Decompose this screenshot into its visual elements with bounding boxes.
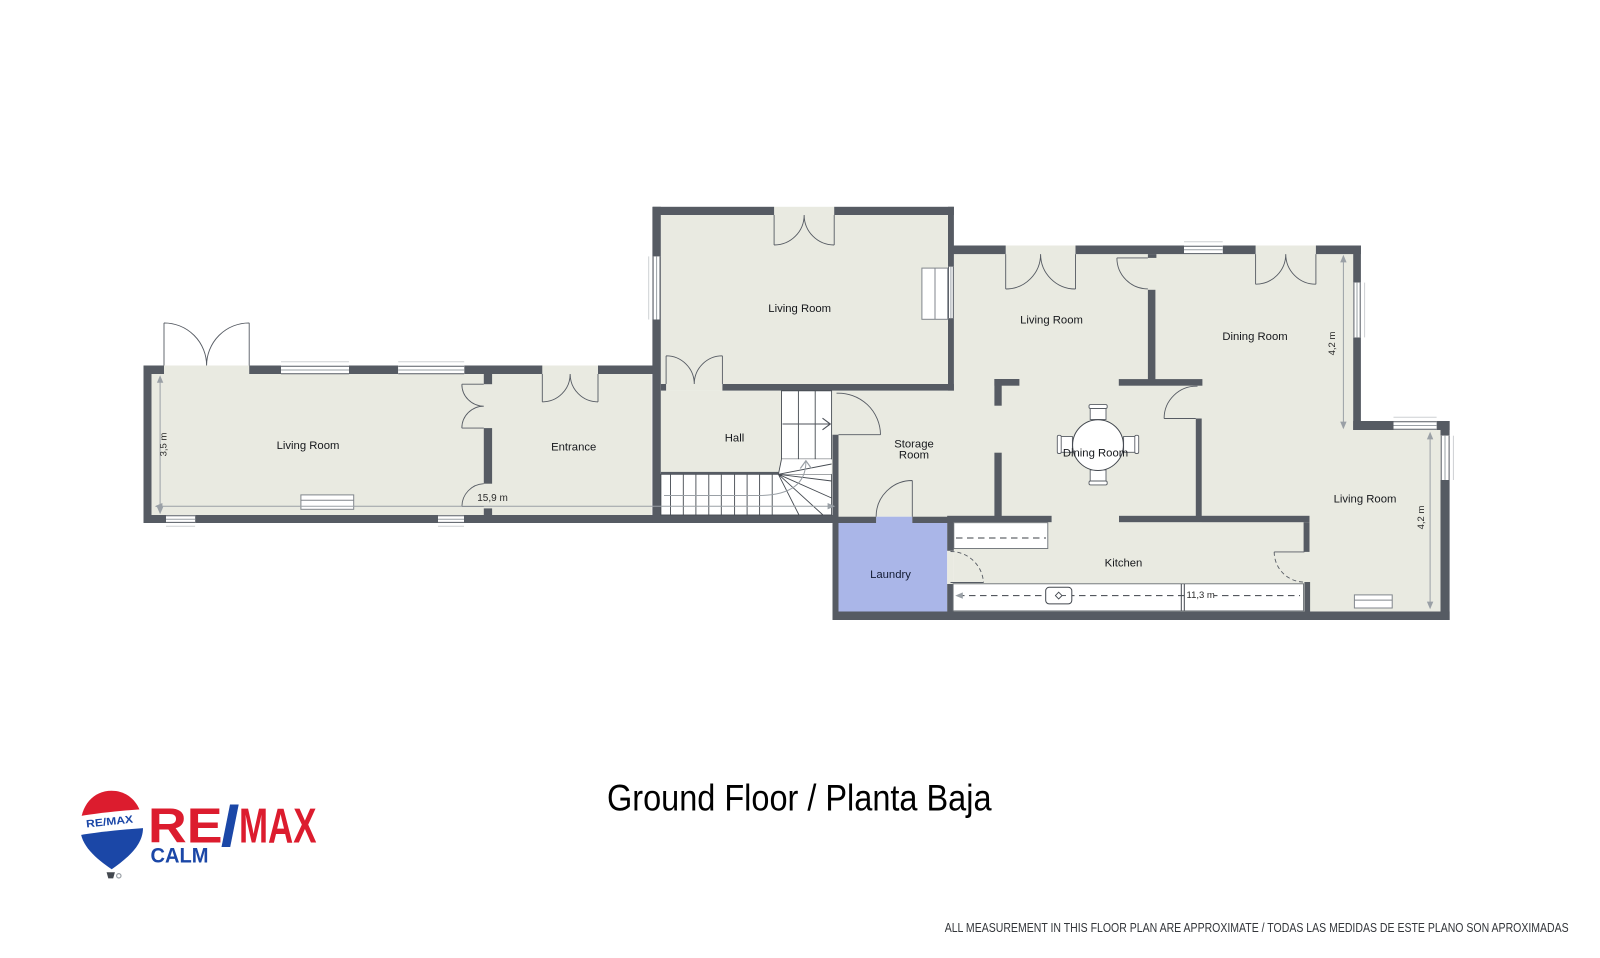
svg-text:Living Room: Living Room bbox=[1334, 494, 1397, 506]
svg-text:CALM: CALM bbox=[151, 844, 209, 868]
svg-text:3,5 m: 3,5 m bbox=[159, 433, 170, 457]
svg-text:11,3 m: 11,3 m bbox=[1187, 590, 1215, 601]
svg-text:Living Room: Living Room bbox=[768, 303, 831, 315]
svg-text:15,9 m: 15,9 m bbox=[477, 493, 508, 504]
svg-text:Entrance: Entrance bbox=[551, 441, 596, 453]
svg-text:Room: Room bbox=[899, 449, 929, 461]
svg-text:Dining Room: Dining Room bbox=[1222, 331, 1287, 343]
svg-text:4,2 m: 4,2 m bbox=[1327, 332, 1338, 356]
svg-text:Hall: Hall bbox=[725, 433, 744, 445]
svg-text:ALL MEASUREMENT IN THIS FLOOR: ALL MEASUREMENT IN THIS FLOOR PLAN ARE A… bbox=[945, 920, 1569, 935]
svg-text:MAX: MAX bbox=[239, 799, 317, 854]
svg-text:Living Room: Living Room bbox=[277, 440, 340, 452]
svg-text:Kitchen: Kitchen bbox=[1105, 557, 1143, 569]
svg-text:Living Room: Living Room bbox=[1020, 314, 1083, 326]
svg-text:Dining Room: Dining Room bbox=[1063, 448, 1128, 460]
svg-text:Laundry: Laundry bbox=[870, 569, 911, 581]
svg-text:Ground Floor / Planta Baja: Ground Floor / Planta Baja bbox=[607, 778, 992, 819]
svg-text:4,2 m: 4,2 m bbox=[1416, 506, 1427, 530]
